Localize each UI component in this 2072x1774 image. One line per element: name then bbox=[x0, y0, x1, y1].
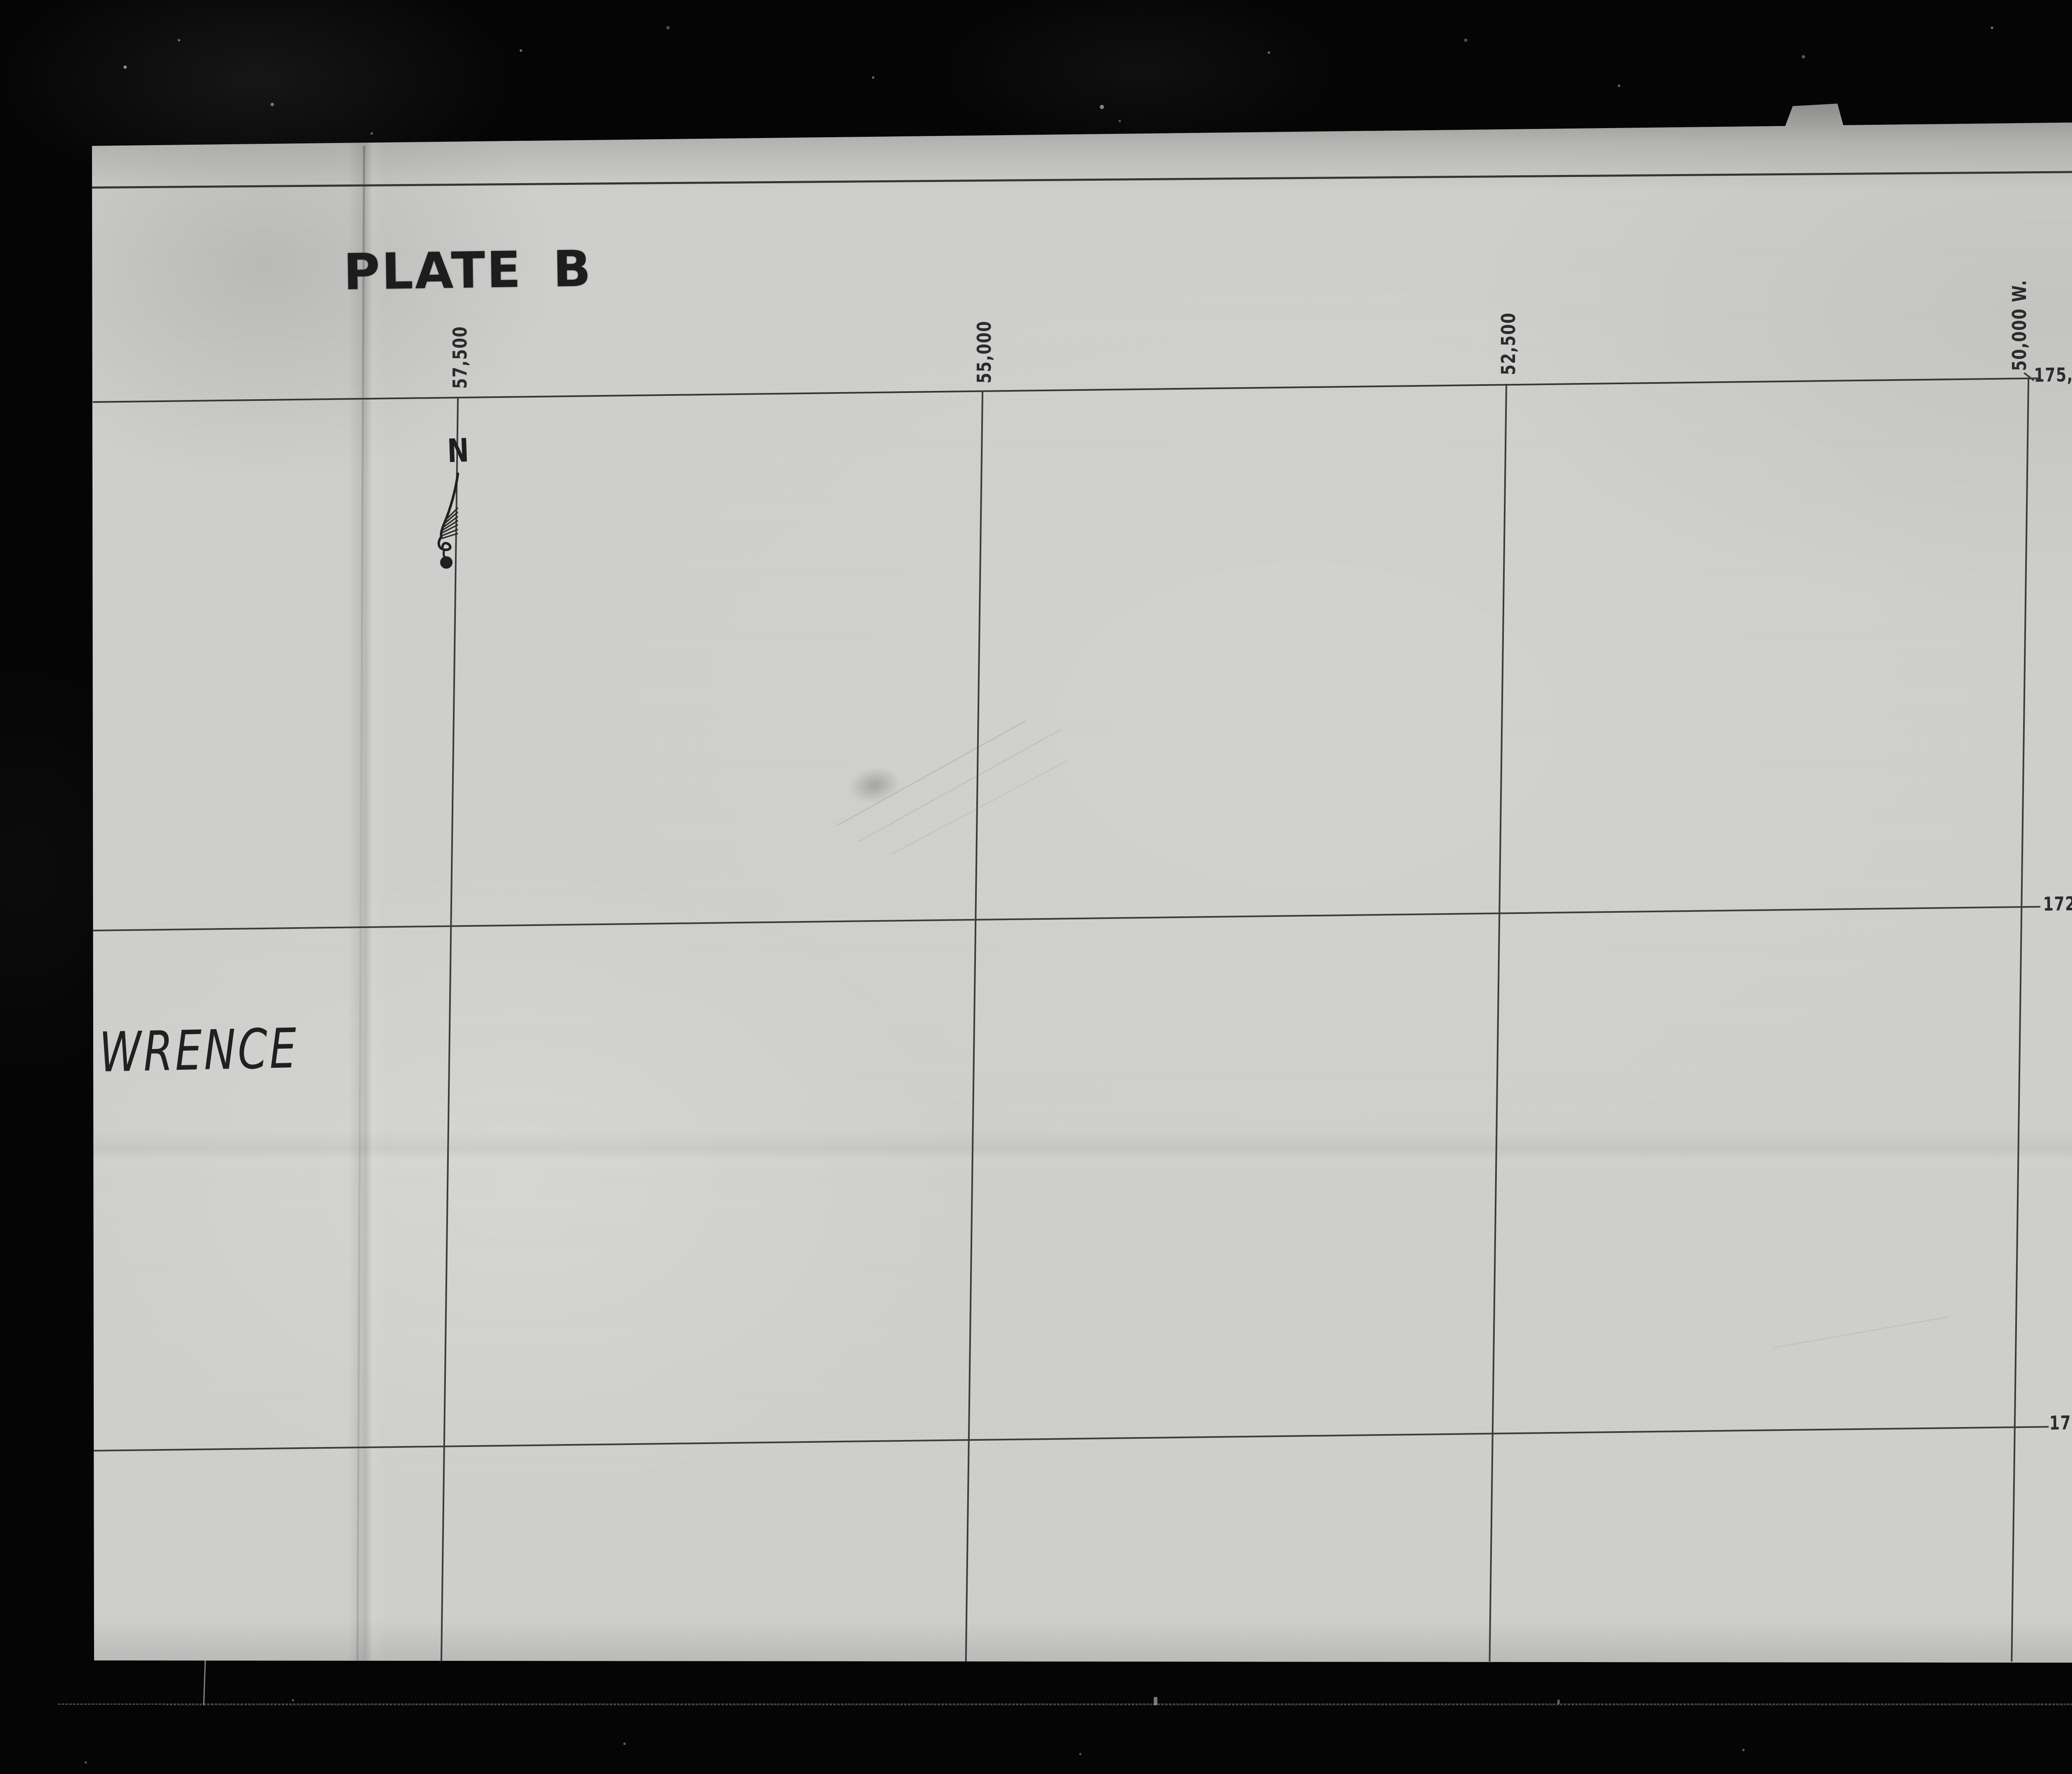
grid-line-50000w bbox=[2011, 378, 2029, 1662]
paper-smudge bbox=[846, 763, 904, 808]
coordinate-label-52500: 52,500 bbox=[1498, 312, 1519, 375]
paper-fold-crease bbox=[356, 146, 365, 1661]
film-dust bbox=[1154, 1697, 1157, 1705]
film-dust bbox=[1557, 1699, 1560, 1704]
film-dust-specks bbox=[0, 0, 2, 2]
grid-line-52500w bbox=[1489, 384, 1507, 1662]
coordinate-label-55000: 55,000 bbox=[974, 320, 995, 383]
paper-scratch bbox=[1774, 1316, 1949, 1348]
coordinate-label-57500: 57,500 bbox=[450, 326, 471, 389]
north-arrow-icon bbox=[425, 466, 479, 578]
coordinate-label-172500: 172,500 bbox=[2043, 894, 2072, 914]
north-label: N bbox=[447, 434, 470, 468]
plate-title: PLATE B bbox=[343, 245, 593, 298]
grid-line-172500n bbox=[93, 906, 2041, 931]
grid-line-55000w bbox=[965, 390, 983, 1662]
film-scratch-line bbox=[166, 1705, 2072, 1706]
sheet-border-top bbox=[92, 170, 2072, 189]
coordinate-label-50000w: 50,000 W. bbox=[2009, 279, 2030, 371]
grid-line-170000n bbox=[93, 1426, 2049, 1452]
place-name-partial: WRENCE bbox=[99, 1019, 299, 1083]
map-sheet: PLATE B 57,500 55,000 52,500 50,000 W. 1… bbox=[0, 0, 2072, 1774]
coordinate-label-170000: 170,000 bbox=[2049, 1413, 2072, 1432]
grid-line-57500w bbox=[441, 397, 459, 1662]
grid-line-175000n bbox=[93, 378, 2038, 403]
coordinate-label-175000n: 175,000 N bbox=[2034, 364, 2072, 385]
